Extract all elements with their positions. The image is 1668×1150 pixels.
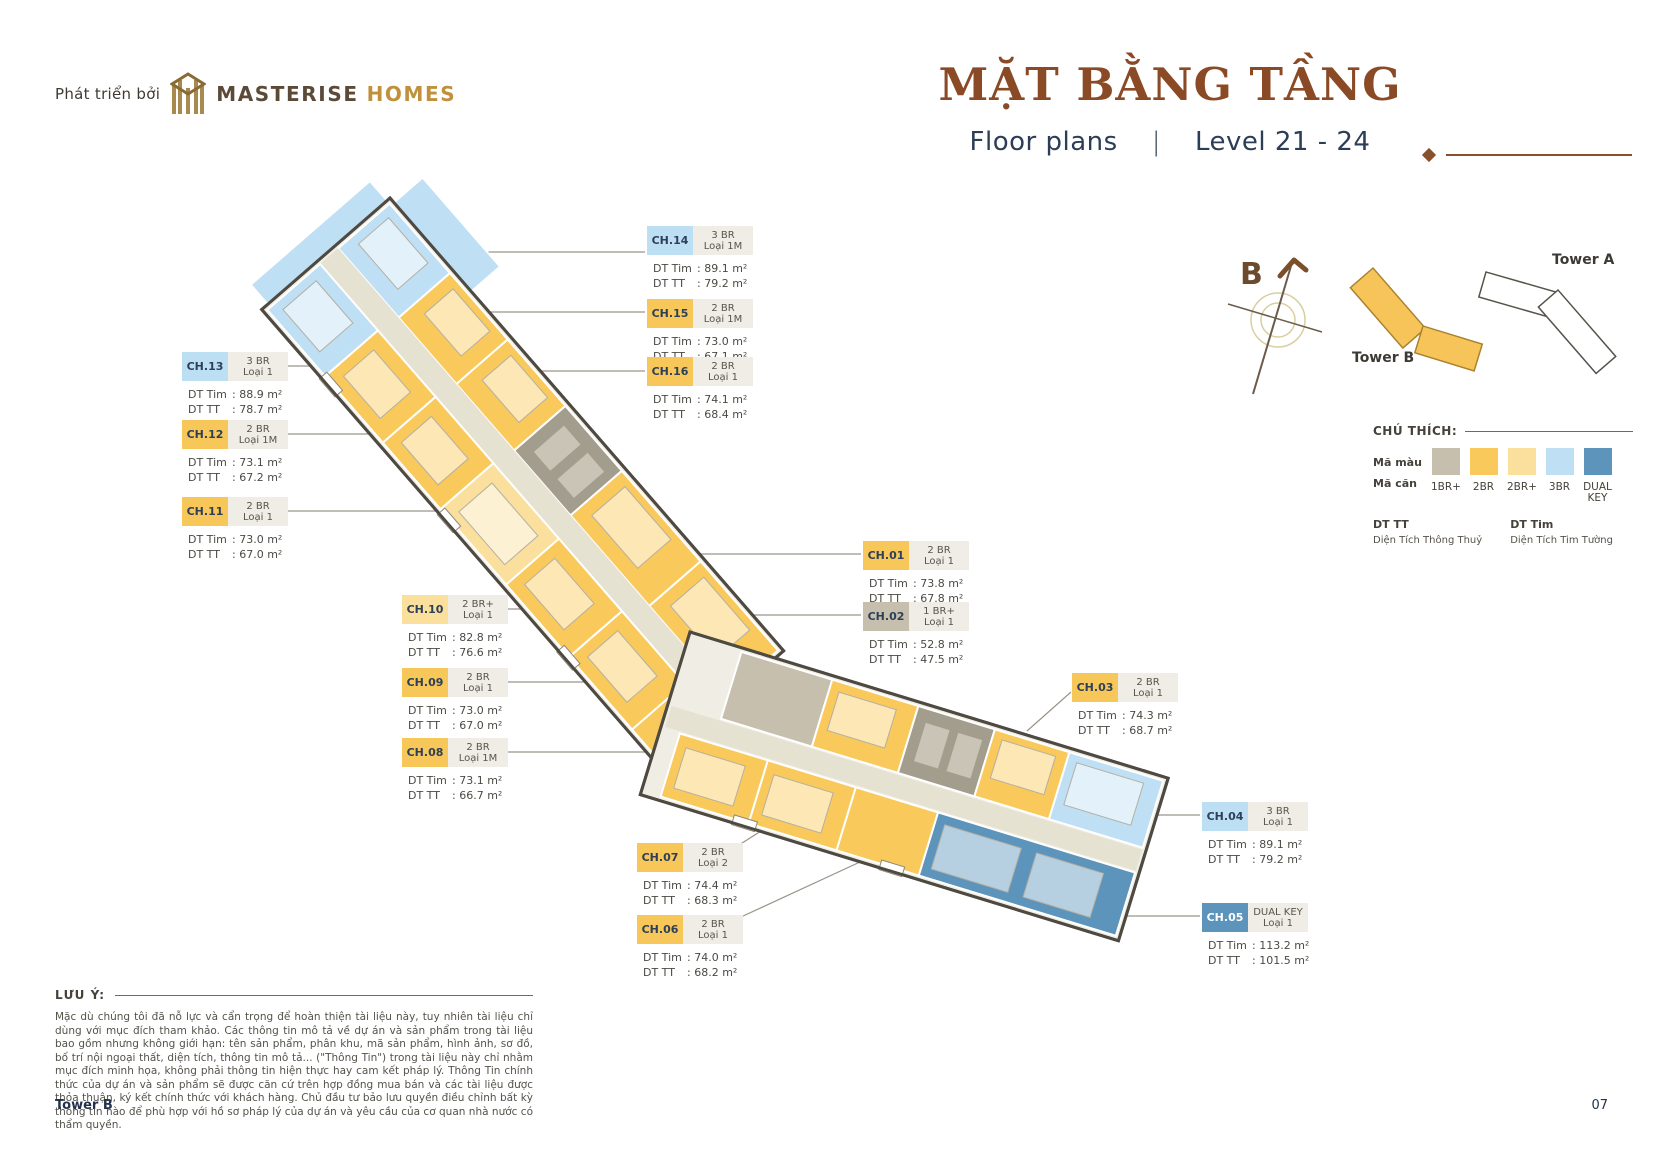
unit-variant: Loại 1 — [1263, 817, 1293, 828]
unit-dt-tim: 73.8 m² — [913, 577, 963, 590]
unit-dt-tim: 88.9 m² — [232, 388, 282, 401]
legend-title: CHÚ THÍCH: — [1373, 424, 1457, 438]
unit-callout-ch14: CH.14 3 BRLoại 1M DT Tim89.1 m² DT TT79.… — [647, 226, 797, 291]
unit-type: 2 BR — [246, 424, 269, 435]
unit-id-badge: CH.10 — [402, 595, 448, 624]
unit-dt-tt: 47.5 m² — [913, 653, 963, 666]
unit-variant: Loại 2 — [698, 858, 728, 869]
unit-id-badge: CH.01 — [863, 541, 909, 570]
unit-id-badge: CH.03 — [1072, 673, 1118, 702]
unit-callout-ch06: CH.06 2 BRLoại 1 DT Tim74.0 m² DT TT68.2… — [637, 915, 787, 980]
unit-callout-ch03: CH.03 2 BRLoại 1 DT Tim74.3 m² DT TT68.7… — [1072, 673, 1222, 738]
unit-callout-ch15: CH.15 2 BRLoại 1M DT Tim73.0 m² DT TT67.… — [647, 299, 797, 364]
legend-label-2br: 2BR — [1469, 482, 1498, 493]
unit-dt-tt: 101.5 m² — [1252, 954, 1309, 967]
unit-id-badge: CH.15 — [647, 299, 693, 328]
legend-dt-tim: DT Tim Diện Tích Tim Tường — [1510, 518, 1613, 546]
unit-variant: Loại 1 — [1133, 688, 1163, 699]
unit-type: 2 BR — [466, 672, 489, 683]
unit-id-badge: CH.08 — [402, 738, 448, 767]
unit-id-badge: CH.11 — [182, 497, 228, 526]
unit-variant: Loại 1 — [243, 367, 273, 378]
legend-code-row-label: Mã căn — [1373, 477, 1431, 490]
unit-type: 2 BR+ — [462, 599, 494, 610]
unit-id-badge: CH.06 — [637, 915, 683, 944]
unit-dt-tim: 73.0 m² — [232, 533, 282, 546]
legend-color-row-label: Mã màu — [1373, 456, 1431, 469]
unit-variant: Loại 1M — [704, 241, 743, 252]
unit-dt-tim: 73.1 m² — [452, 774, 502, 787]
legend: CHÚ THÍCH: Mã màu Mã căn 1BR+ 2BR 2BR+ 3… — [1373, 424, 1633, 546]
unit-callout-ch09: CH.09 2 BRLoại 1 DT Tim73.0 m² DT TT67.0… — [402, 668, 552, 733]
unit-id-badge: CH.13 — [182, 352, 228, 381]
unit-callout-ch04: CH.04 3 BRLoại 1 DT Tim89.1 m² DT TT79.2… — [1202, 802, 1352, 867]
unit-dt-tt: 67.0 m² — [232, 548, 282, 561]
compass-icon: B — [1228, 257, 1322, 394]
unit-id-badge: CH.14 — [647, 226, 693, 255]
compass-label: B — [1240, 257, 1263, 292]
unit-dt-tt: 66.7 m² — [452, 789, 502, 802]
unit-id-badge: CH.02 — [863, 602, 909, 631]
unit-id-badge: CH.05 — [1202, 903, 1248, 932]
unit-dt-tim: 74.3 m² — [1122, 709, 1172, 722]
unit-variant: Loại 1M — [239, 435, 278, 446]
unit-variant: Loại 1 — [463, 610, 493, 621]
unit-dt-tim: 89.1 m² — [697, 262, 747, 275]
unit-id-badge: CH.07 — [637, 843, 683, 872]
unit-variant: Loại 1 — [463, 683, 493, 694]
disclaimer: LƯU Ý: Mặc dù chúng tôi đã nỗ lực và cẩn… — [55, 988, 533, 1133]
legend-swatch-dual-key — [1584, 448, 1612, 475]
unit-id-badge: CH.16 — [647, 357, 693, 386]
unit-dt-tt: 68.7 m² — [1122, 724, 1172, 737]
unit-type: 2 BR — [466, 742, 489, 753]
unit-dt-tim: 74.4 m² — [687, 879, 737, 892]
unit-variant: Loại 1M — [704, 314, 743, 325]
disclaimer-title: LƯU Ý: — [55, 988, 105, 1002]
unit-id-badge: CH.09 — [402, 668, 448, 697]
unit-dt-tt: 76.6 m² — [452, 646, 502, 659]
legend-dt-tt: DT TT Diện Tích Thông Thuỷ — [1373, 518, 1482, 546]
unit-dt-tim: 89.1 m² — [1252, 838, 1302, 851]
unit-type: 2 BR — [927, 545, 950, 556]
unit-type: 2 BR — [246, 501, 269, 512]
unit-variant: Loại 1 — [708, 372, 738, 383]
tower-b-label: Tower B — [1352, 350, 1414, 366]
unit-callout-ch07: CH.07 2 BRLoại 2 DT Tim74.4 m² DT TT68.3… — [637, 843, 787, 908]
legend-swatch-3br — [1546, 448, 1574, 475]
legend-label-1br-plus: 1BR+ — [1431, 482, 1460, 493]
legend-label-3br: 3BR — [1545, 482, 1574, 493]
disclaimer-text: Mặc dù chúng tôi đã nỗ lực và cẩn trọng … — [55, 1011, 533, 1133]
unit-variant: Loại 1 — [243, 512, 273, 523]
unit-variant: Loại 1 — [924, 556, 954, 567]
unit-type: 2 BR — [1136, 677, 1159, 688]
unit-callout-ch16: CH.16 2 BRLoại 1 DT Tim74.1 m² DT TT68.4… — [647, 357, 797, 422]
unit-dt-tt: 67.0 m² — [452, 719, 502, 732]
unit-dt-tim: 73.0 m² — [697, 335, 747, 348]
unit-type: 2 BR — [711, 303, 734, 314]
unit-variant: Loại 1 — [698, 930, 728, 941]
unit-dt-tim: 73.0 m² — [452, 704, 502, 717]
unit-dt-tt: 79.2 m² — [697, 277, 747, 290]
tower-b-shape: Tower B — [1350, 268, 1482, 371]
legend-label-2br-plus: 2BR+ — [1507, 482, 1536, 493]
tower-a-shape: Tower A — [1479, 252, 1616, 373]
unit-dt-tt: 67.2 m² — [232, 471, 282, 484]
legend-swatch-2br-plus — [1508, 448, 1536, 475]
unit-type: 2 BR — [711, 361, 734, 372]
unit-dt-tim: 52.8 m² — [913, 638, 963, 651]
unit-callout-ch10: CH.10 2 BR+Loại 1 DT Tim82.8 m² DT TT76.… — [402, 595, 552, 660]
unit-dt-tt: 68.3 m² — [687, 894, 737, 907]
legend-label-dual-key: DUAL KEY — [1583, 482, 1612, 504]
unit-variant: Loại 1 — [1263, 918, 1293, 929]
unit-id-badge: CH.04 — [1202, 802, 1248, 831]
unit-callout-ch13: CH.13 3 BRLoại 1 DT Tim88.9 m² DT TT78.7… — [182, 352, 332, 417]
unit-id-badge: CH.12 — [182, 420, 228, 449]
unit-type: 3 BR — [1266, 806, 1289, 817]
unit-callout-ch05: CH.05 DUAL KEYLoại 1 DT Tim113.2 m² DT T… — [1202, 903, 1352, 968]
unit-type: 3 BR — [246, 356, 269, 367]
unit-type: 3 BR — [711, 230, 734, 241]
unit-callout-ch12: CH.12 2 BRLoại 1M DT Tim73.1 m² DT TT67.… — [182, 420, 332, 485]
unit-dt-tim: 74.0 m² — [687, 951, 737, 964]
unit-callout-ch08: CH.08 2 BRLoại 1M DT Tim73.1 m² DT TT66.… — [402, 738, 552, 803]
footer-tower-label: Tower B — [55, 1098, 113, 1113]
unit-type: 1 BR+ — [923, 606, 955, 617]
floor-plan-drawing: B Tower B Tower A — [0, 0, 1668, 1150]
unit-callout-ch11: CH.11 2 BRLoại 1 DT Tim73.0 m² DT TT67.0… — [182, 497, 332, 562]
unit-callout-ch02: CH.02 1 BR+Loại 1 DT Tim52.8 m² DT TT47.… — [863, 602, 1013, 667]
unit-callout-ch01: CH.01 2 BRLoại 1 DT Tim73.8 m² DT TT67.8… — [863, 541, 1013, 606]
unit-type: DUAL KEY — [1253, 907, 1303, 918]
floor-plan-page: Phát triển bởi MASTERISEHOMES MẶT BẰNG T… — [0, 0, 1668, 1150]
unit-dt-tim: 82.8 m² — [452, 631, 502, 644]
unit-dt-tim: 73.1 m² — [232, 456, 282, 469]
legend-swatch-2br — [1470, 448, 1498, 475]
unit-variant: Loại 1M — [459, 753, 498, 764]
unit-dt-tt: 78.7 m² — [232, 403, 282, 416]
unit-dt-tt: 68.2 m² — [687, 966, 737, 979]
unit-dt-tt: 68.4 m² — [697, 408, 747, 421]
unit-variant: Loại 1 — [924, 617, 954, 628]
unit-type: 2 BR — [701, 919, 724, 930]
tower-a-label: Tower A — [1552, 252, 1615, 268]
unit-type: 2 BR — [701, 847, 724, 858]
unit-dt-tim: 113.2 m² — [1252, 939, 1309, 952]
page-number: 07 — [1591, 1098, 1608, 1113]
legend-swatch-1br-plus — [1432, 448, 1460, 475]
unit-dt-tim: 74.1 m² — [697, 393, 747, 406]
unit-dt-tt: 79.2 m² — [1252, 853, 1302, 866]
